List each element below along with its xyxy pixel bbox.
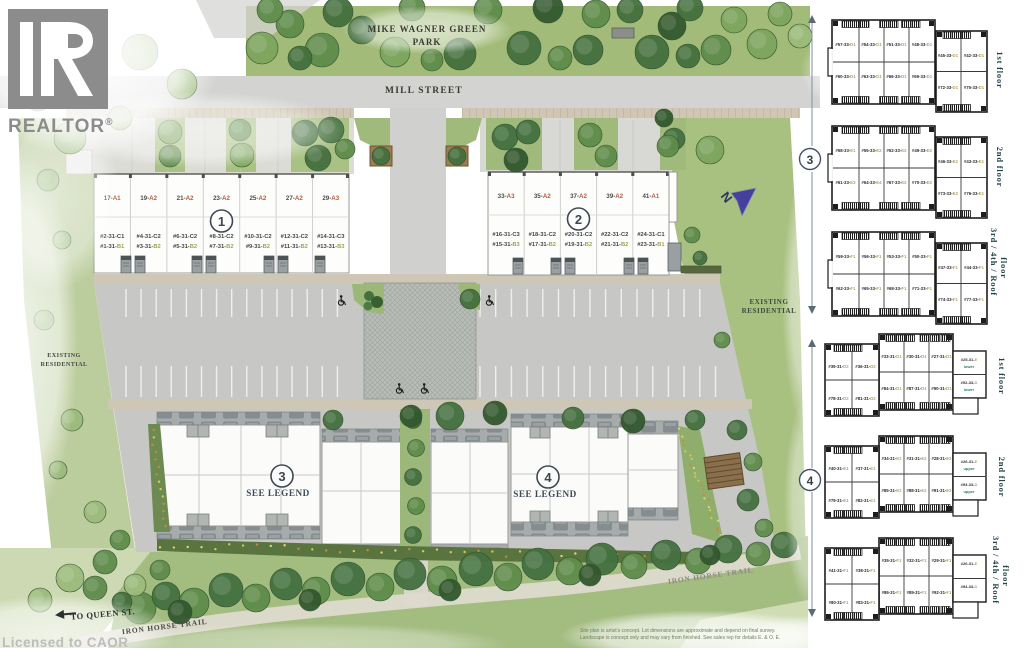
svg-text:#12-31-C2: #12-31-C2 [281,234,308,240]
svg-text:#15-31-B3: #15-31-B3 [492,242,520,248]
svg-text:#34-31-E2: #34-31-E2 [881,456,902,461]
svg-text:#53-33-F1: #53-33-F1 [887,254,907,259]
svg-text:lower: lower [964,387,975,392]
svg-text:21-A2: 21-A2 [177,195,194,202]
svg-text:19-A2: 19-A2 [140,195,157,202]
svg-text:#24-31-C1: #24-31-C1 [637,232,665,238]
svg-text:#43-33-E1: #43-33-E1 [964,159,985,164]
svg-text:EXISTING: EXISTING [47,352,80,359]
svg-text:#68-33-F1: #68-33-F1 [887,286,907,291]
svg-text:#5-31-B2: #5-31-B2 [173,244,197,250]
svg-text:#63-33-D1: #63-33-D1 [861,74,882,79]
svg-text:#85-31-E2: #85-31-E2 [881,488,902,493]
svg-text:3: 3 [278,469,285,484]
svg-text:2: 2 [575,212,582,227]
svg-text:#11-31-B2: #11-31-B2 [281,244,308,250]
svg-text:#7-31-B2: #7-31-B2 [209,244,233,250]
svg-text:#22-31-C2: #22-31-C2 [601,232,628,238]
svg-text:#46-33-E1: #46-33-E1 [938,159,959,164]
svg-text:#82-31-E1: #82-31-E1 [855,498,876,503]
svg-text:PARK: PARK [413,37,442,47]
svg-text:#41-31-F1: #41-31-F1 [829,568,849,573]
svg-text:#10-31-C2: #10-31-C2 [244,234,271,240]
svg-text:#32-31-F1: #32-31-F1 [907,558,927,563]
svg-text:#35-31-F1: #35-31-F1 [882,558,902,563]
svg-text:#8-31-C2: #8-31-C2 [209,234,233,240]
svg-text:upper: upper [963,466,975,471]
svg-text:#83-31-F1: #83-31-F1 [856,600,876,605]
svg-text:#90-31-D1: #90-31-D1 [931,386,952,391]
svg-text:lower: lower [964,364,975,369]
svg-text:#81-31-D2: #81-31-D2 [855,396,876,401]
svg-text:#13-31-B3: #13-31-B3 [317,244,345,250]
svg-text:39-A2: 39-A2 [606,193,623,200]
svg-text:1st floor: 1st floor [997,357,1007,394]
svg-text:#92-33-D: #92-33-D [961,380,978,385]
svg-text:#70-33-E2: #70-33-E2 [912,180,933,185]
svg-text:#57-33-D1: #57-33-D1 [835,42,856,47]
svg-text:#9-31-B2: #9-31-B2 [246,244,270,250]
svg-text:Licensed to CAOR: Licensed to CAOR [2,635,129,648]
svg-text:#86-31-F1: #86-31-F1 [882,590,902,595]
svg-text:#72-33-D1: #72-33-D1 [938,85,959,90]
svg-text:#80-31-F1: #80-31-F1 [829,600,849,605]
svg-text:Site plan is artist's concept.: Site plan is artist's concept. Lot dimen… [580,628,775,634]
svg-text:#93-33-D: #93-33-D [961,482,978,487]
svg-text:#78-31-D2: #78-31-D2 [828,396,849,401]
svg-text:#71-33-F1: #71-33-F1 [912,286,932,291]
svg-text:#26-31-E: #26-31-E [961,561,978,566]
svg-text:#77-33-F1: #77-33-F1 [964,297,984,302]
svg-text:#37-31-E1: #37-31-E1 [855,466,876,471]
svg-text:35-A2: 35-A2 [534,193,551,200]
svg-text:3: 3 [807,153,814,167]
svg-text:RESIDENTIAL: RESIDENTIAL [40,361,87,368]
svg-text:#51-33-D1: #51-33-D1 [886,42,907,47]
svg-text:3rd / 4th / Roof: 3rd / 4th / Roof [991,536,1001,604]
svg-text:#3-31-B2: #3-31-B2 [137,244,161,250]
svg-text:#58-33-E1: #58-33-E1 [835,148,856,153]
svg-text:#50-33-F1: #50-33-F1 [912,254,932,259]
svg-text:#52-33-E2: #52-33-E2 [886,148,907,153]
svg-text:2nd floor: 2nd floor [997,457,1007,498]
svg-text:#39-31-D2: #39-31-D2 [828,364,849,369]
svg-text:#92-31-F1: #92-31-F1 [932,590,952,595]
svg-text:4: 4 [807,474,814,488]
svg-text:#29-31-F1: #29-31-F1 [932,558,952,563]
svg-text:#23-31-B1: #23-31-B1 [637,242,665,248]
svg-text:#76-33-E1: #76-33-E1 [964,191,985,196]
svg-text:37-A2: 37-A2 [570,193,587,200]
svg-text:#62-33-F1: #62-33-F1 [836,286,856,291]
svg-text:#38-31-F1: #38-31-F1 [856,568,876,573]
svg-text:29-A3: 29-A3 [322,195,339,202]
svg-text:#74-33-F1: #74-33-F1 [938,297,958,302]
svg-text:SEE LEGEND: SEE LEGEND [246,488,309,498]
svg-text:1: 1 [218,214,225,229]
svg-text:#94-33-D: #94-33-D [961,584,978,589]
svg-text:#89-31-F1: #89-31-F1 [907,590,927,595]
svg-text:23-A2: 23-A2 [213,195,230,202]
svg-text:2nd floor: 2nd floor [995,147,1005,188]
svg-text:#16-31-C3: #16-31-C3 [492,232,520,238]
svg-text:#40-31-E1: #40-31-E1 [828,466,849,471]
svg-text:#91-31-E2: #91-31-E2 [931,488,952,493]
svg-text:#27-31-D1: #27-31-D1 [931,354,952,359]
svg-text:#73-33-E2: #73-33-E2 [938,191,959,196]
svg-text:SEE LEGEND: SEE LEGEND [513,489,576,499]
svg-text:#60-33-D1: #60-33-D1 [835,74,856,79]
svg-text:MIKE WAGNER GREEN: MIKE WAGNER GREEN [368,24,487,34]
svg-text:#17-31-B2: #17-31-B2 [529,242,556,248]
svg-text:#54-33-D1: #54-33-D1 [861,42,882,47]
svg-text:floor: floor [999,257,1009,278]
svg-text:#84-31-D1: #84-31-D1 [881,386,902,391]
svg-text:#56-33-F1: #56-33-F1 [862,254,882,259]
svg-text:#36-31-D2: #36-31-D2 [855,364,876,369]
svg-text:25-A2: 25-A2 [249,195,266,202]
svg-text:#18-31-C2: #18-31-C2 [529,232,556,238]
svg-text:#66-33-D1: #66-33-D1 [886,74,907,79]
svg-text:RESIDENTIAL: RESIDENTIAL [742,307,797,315]
svg-text:#87-31-D1: #87-31-D1 [906,386,927,391]
svg-text:EXISTING: EXISTING [749,298,788,306]
svg-text:floor: floor [1001,565,1011,586]
svg-text:3rd / 4th / Roof: 3rd / 4th / Roof [989,228,999,296]
svg-text:33-A3: 33-A3 [498,193,515,200]
svg-text:#67-33-E2: #67-33-E2 [886,180,907,185]
svg-text:#20-31-C2: #20-31-C2 [565,232,592,238]
svg-text:#75-33-D1: #75-33-D1 [964,85,985,90]
svg-text:#44-33-F1: #44-33-F1 [964,265,984,270]
svg-text:#21-31-B2: #21-31-B2 [601,242,628,248]
svg-text:#61-33-E3: #61-33-E3 [835,180,856,185]
svg-text:#19-31-B2: #19-31-B2 [565,242,592,248]
svg-text:upper: upper [963,489,975,494]
svg-text:#55-33-E2: #55-33-E2 [861,148,882,153]
svg-text:#48-33-D1: #48-33-D1 [912,42,933,47]
svg-text:#65-33-F1: #65-33-F1 [862,286,882,291]
svg-text:#28-31-E2: #28-31-E2 [931,456,952,461]
svg-text:#4-31-C2: #4-31-C2 [137,234,161,240]
svg-text:#88-31-E2: #88-31-E2 [906,488,927,493]
svg-text:#49-33-E2: #49-33-E2 [912,148,933,153]
svg-text:#30-31-D1: #30-31-D1 [906,354,927,359]
svg-text:#42-33-D1: #42-33-D1 [964,53,985,58]
svg-text:#45-33-D1: #45-33-D1 [938,53,959,58]
svg-text:41-A1: 41-A1 [642,193,659,200]
svg-text:Landscape is concept only and: Landscape is concept only and may vary f… [580,635,780,641]
svg-text:#47-33-F1: #47-33-F1 [938,265,958,270]
svg-text:#69-33-D1: #69-33-D1 [912,74,933,79]
svg-text:4: 4 [544,470,552,485]
svg-text:1st floor: 1st floor [995,51,1005,88]
svg-text:#31-31-E2: #31-31-E2 [906,456,927,461]
svg-text:MILL STREET: MILL STREET [385,86,463,96]
svg-text:#33-31-D1: #33-31-D1 [881,354,902,359]
svg-text:#79-31-E1: #79-31-E1 [828,498,849,503]
svg-text:#26-31-E: #26-31-E [961,459,978,464]
svg-text:#59-33-F1: #59-33-F1 [836,254,856,259]
svg-text:#6-31-C2: #6-31-C2 [173,234,197,240]
svg-text:#64-33-E4: #64-33-E4 [861,180,882,185]
svg-text:#14-31-C3: #14-31-C3 [317,234,345,240]
svg-text:27-A2: 27-A2 [286,195,303,202]
svg-text:#25-31-E: #25-31-E [961,357,978,362]
svg-text:REALTOR®: REALTOR® [8,116,113,137]
